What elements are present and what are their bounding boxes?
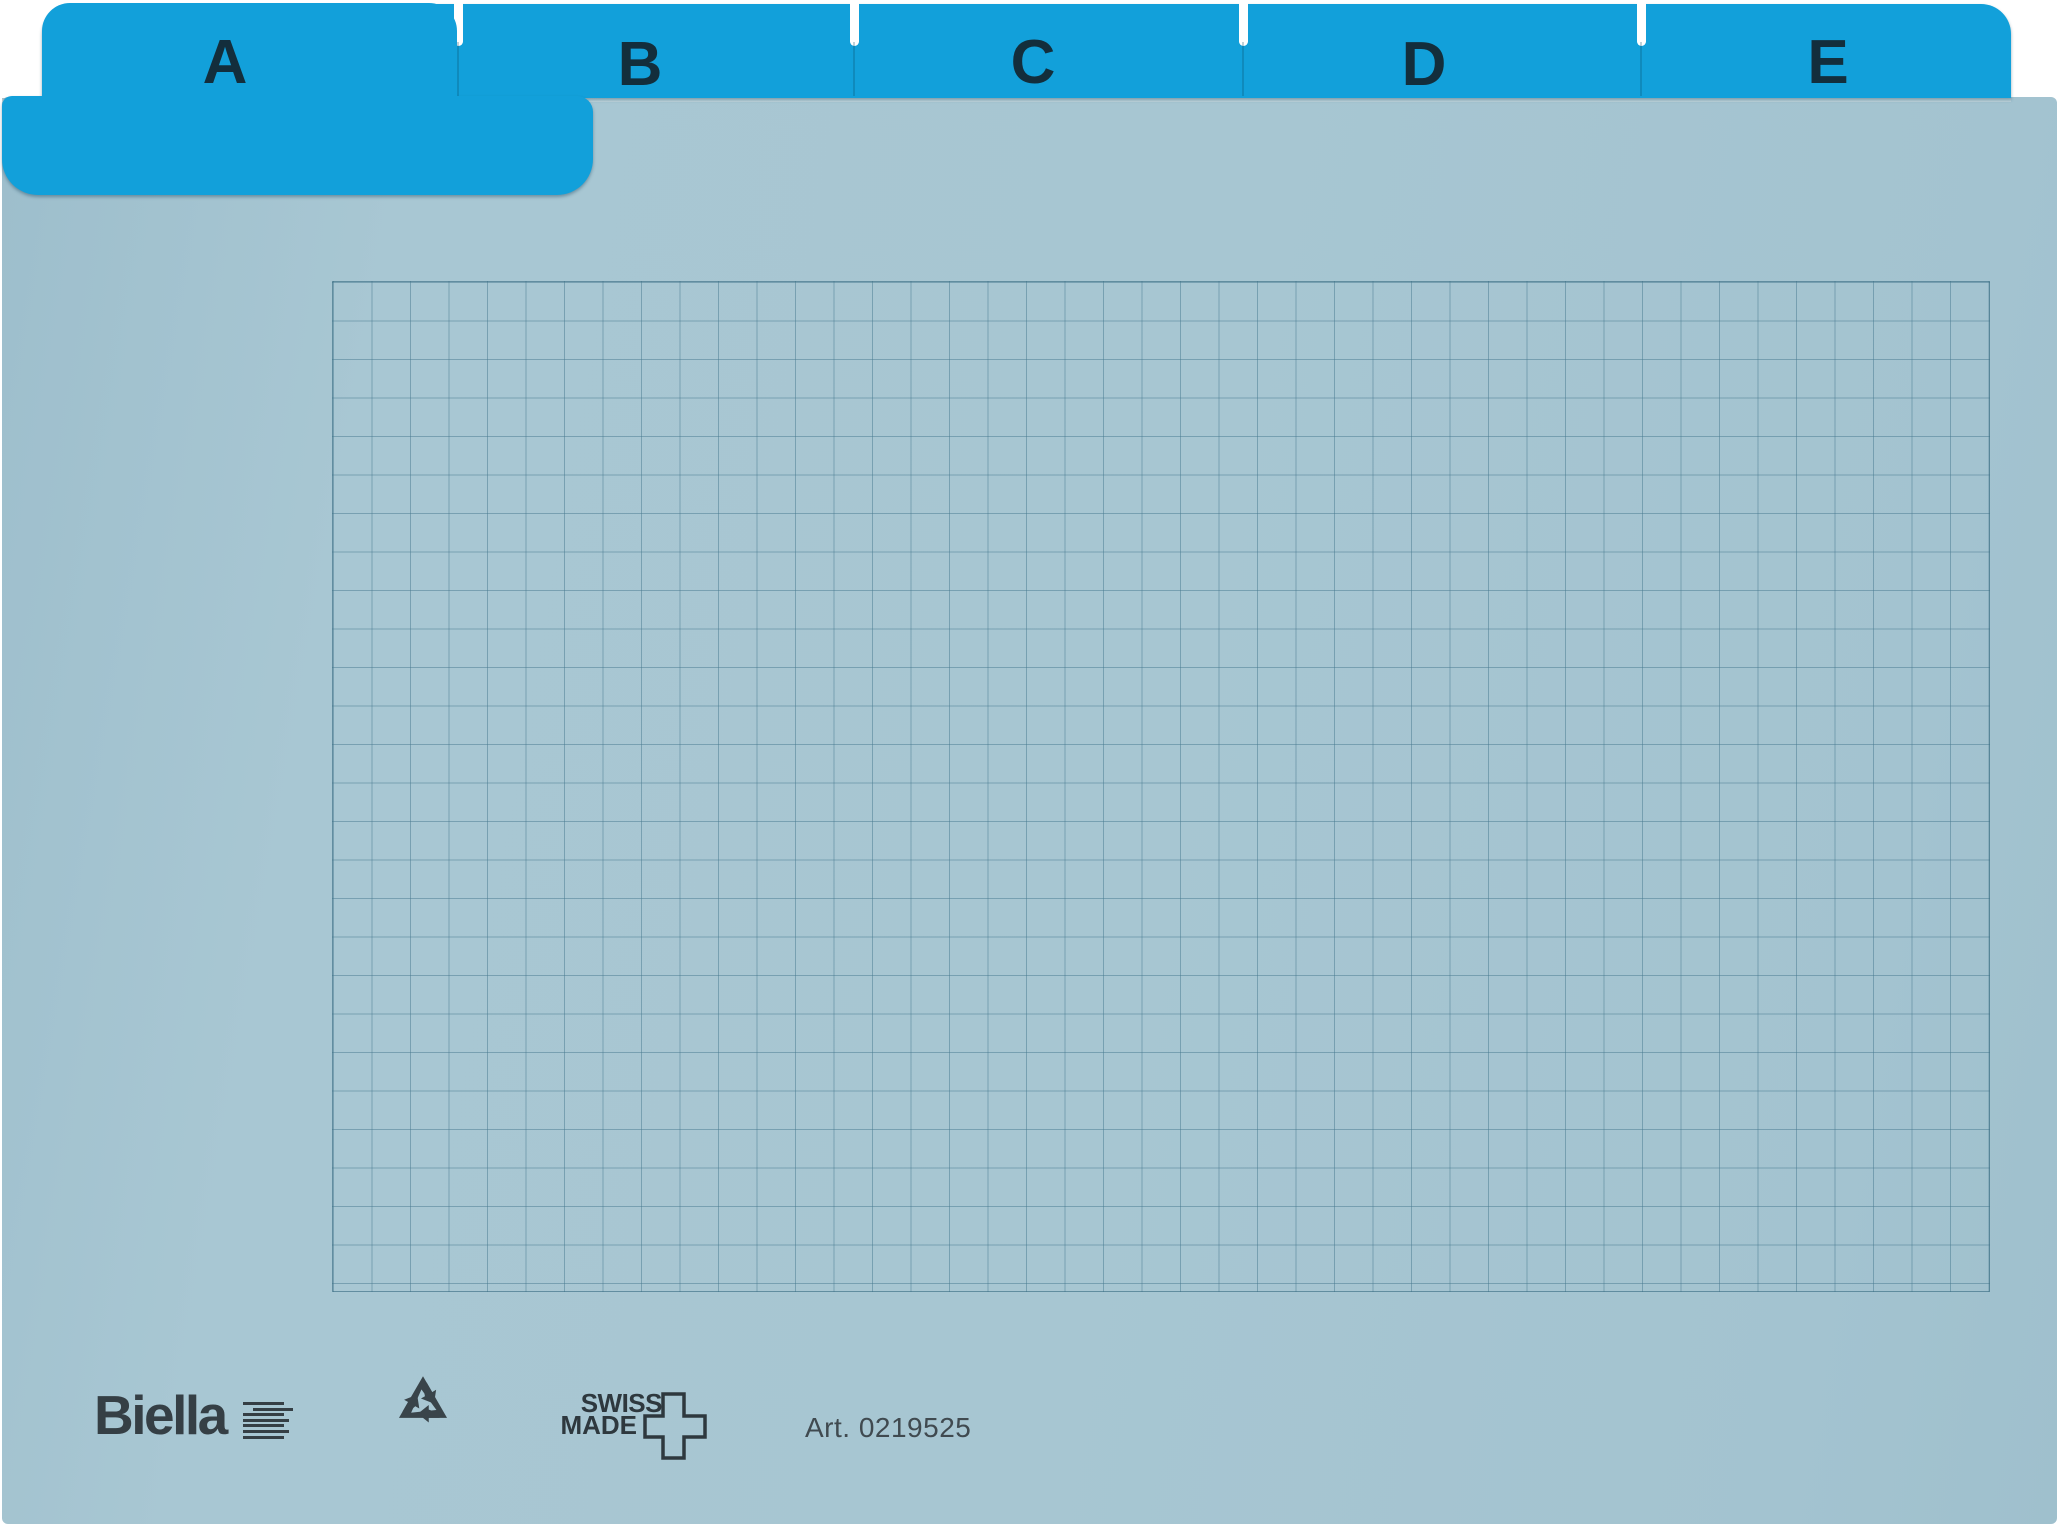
biella-lines-icon xyxy=(243,1402,293,1439)
tab-seam xyxy=(457,42,459,96)
tab-letter-d: D xyxy=(1402,34,1447,96)
recycle-icon xyxy=(386,1363,460,1445)
brand-logo-text: Biella xyxy=(94,1392,226,1438)
tab-seam xyxy=(853,42,855,96)
squared-grid xyxy=(332,281,1990,1292)
tab-gap-b-c xyxy=(850,0,859,46)
tab-seam xyxy=(1640,42,1642,96)
tab-gap-c-d xyxy=(1239,0,1248,46)
tab-gap-d-e xyxy=(1637,0,1646,46)
tab-a xyxy=(42,3,457,98)
swiss-made-line2: MADE xyxy=(560,1414,637,1436)
swiss-cross-icon xyxy=(643,1392,707,1460)
tab-seam xyxy=(1242,42,1244,96)
tab-letter-b: B xyxy=(618,34,663,96)
tab-letter-a: A xyxy=(203,32,248,94)
tab-letter-c: C xyxy=(1011,32,1056,94)
tab-a-printed-area xyxy=(2,96,593,195)
article-number: Art. 0219525 xyxy=(805,1413,971,1443)
product-photo: A B C D E Biella SWISS MADE Art. 0219525 xyxy=(0,0,2069,1527)
tab-letter-e: E xyxy=(1807,32,1848,94)
